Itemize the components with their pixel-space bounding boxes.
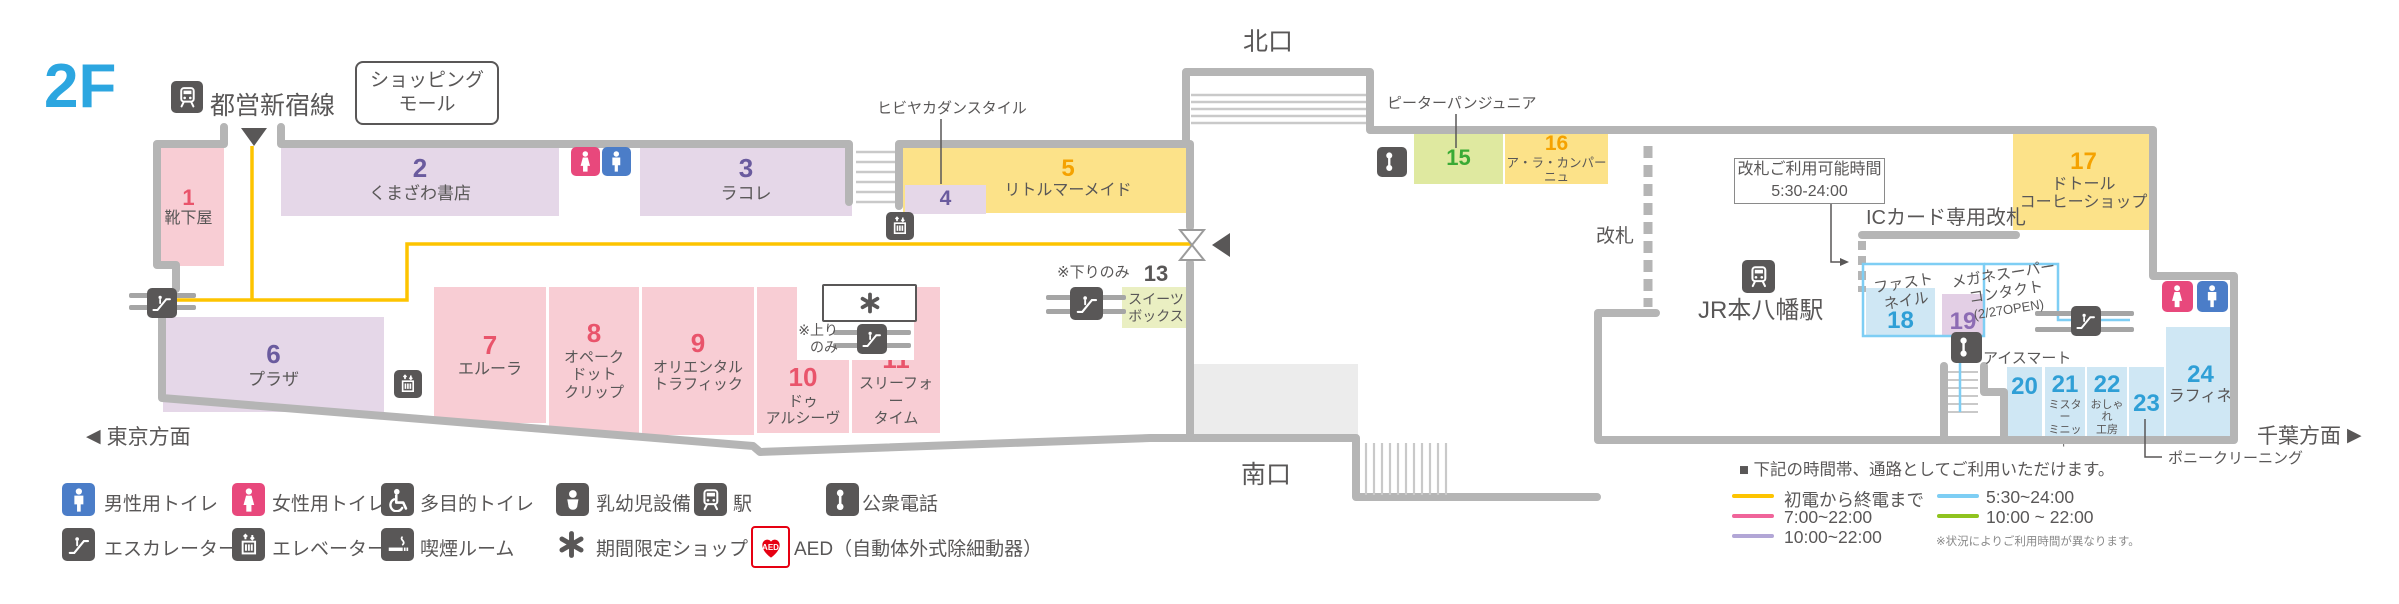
legend-label: エレベーター xyxy=(272,534,386,561)
direction-west: ◀ 東京方面 xyxy=(86,421,191,451)
shop-number: 21 xyxy=(2052,371,2079,399)
shop-area-1: 1 靴下屋 xyxy=(153,147,224,266)
shop-name: オペーク xyxy=(564,349,624,366)
callout-pony: ポニークリーニング xyxy=(2168,450,2303,468)
gate-hours-line1: 改札ご利用可能時間 xyxy=(1737,159,1881,181)
toei-train-icon xyxy=(171,81,203,113)
shop-name: ラコレ xyxy=(721,184,772,204)
legend-period-shop-icon xyxy=(556,529,587,560)
shop-area-23: 23 xyxy=(2129,367,2164,440)
shop-name: ア・ラ・カンパーニュ xyxy=(1505,156,1608,185)
shop-area-4: 4 xyxy=(905,185,986,214)
legend-label: 期間限定ショップ xyxy=(596,534,748,561)
legend-accessible-toilet-icon xyxy=(381,483,414,516)
shop-name: ドトール xyxy=(2051,176,2115,194)
shop-name: ボックス xyxy=(1128,308,1184,324)
mall-label-box: ショッピング モール xyxy=(355,61,499,125)
ic-gate-label: ICカード専用改札 xyxy=(1866,206,2026,230)
shop-number: 15 xyxy=(1446,145,1470,170)
legend-station-icon xyxy=(694,483,727,516)
shop-name: くまざわ書店 xyxy=(369,184,471,204)
period-limited-shop-box xyxy=(822,284,917,322)
shop-area-6: 6 プラザ xyxy=(163,317,384,412)
hours-swatch-yellow xyxy=(1732,494,1774,498)
shop-number: 23 xyxy=(2133,390,2160,418)
callout-ice: アイスマート xyxy=(1983,350,2071,368)
hours-swatch-pink xyxy=(1732,514,1774,518)
shop-area-2: 2 くまざわ書店 xyxy=(281,142,559,216)
shop-name: おしゃれ xyxy=(2087,399,2127,424)
shop-number: 20 xyxy=(2011,373,2038,401)
hours-legend-item: 5:30~24:00 xyxy=(1986,487,2074,508)
gate-hours-box: 改札ご利用可能時間 5:30-24:00 xyxy=(1734,158,1885,204)
shop-number: 16 xyxy=(1545,132,1568,156)
east-triangle-icon: ▶ xyxy=(2347,424,2362,447)
shop-number: 2 xyxy=(413,154,427,184)
toei-line-label: 都営新宿線 xyxy=(210,86,335,122)
shop-number: 6 xyxy=(266,340,280,370)
callout-peter: ピーターパンジュニア xyxy=(1387,95,1537,113)
legend-smoking-room-icon xyxy=(381,528,414,561)
stairs-upper-left xyxy=(856,152,895,202)
public-phone-icon xyxy=(1377,147,1407,177)
direction-east-label: 千葉方面 xyxy=(2257,420,2341,450)
floor-label: 2F xyxy=(44,56,116,118)
gate-hours-line2: 5:30-24:00 xyxy=(1771,181,1848,203)
legend-label: 多目的トイレ xyxy=(420,489,534,516)
period-limited-shop-icon xyxy=(858,291,882,315)
shop-name: 工房 xyxy=(2096,424,2118,437)
female-toilet-icon xyxy=(2162,281,2193,312)
shop-area-13: スイーツ ボックス xyxy=(1122,287,1190,328)
kaisatsu-label: 改札 xyxy=(1596,226,1634,249)
shop-area-24: 24 ラフィネ xyxy=(2166,327,2235,440)
gray-block xyxy=(1192,364,1358,436)
shop-name: 靴下屋 xyxy=(164,210,212,228)
callout-hibiya: ヒビヤカダンスタイル xyxy=(877,100,1027,118)
public-phone-icon xyxy=(1951,332,1982,363)
shop-number: 7 xyxy=(483,331,497,361)
legend-female-toilet-icon xyxy=(232,483,265,516)
male-toilet-icon xyxy=(2197,281,2228,312)
up-only-line1: ※上り xyxy=(796,322,838,339)
shop-name: スリーフォー xyxy=(852,375,940,410)
legend-escalator-icon xyxy=(62,528,95,561)
hours-swatch-green xyxy=(1937,514,1979,518)
escalator-icon xyxy=(147,288,177,318)
shop-name: アルシーヴ xyxy=(766,410,841,427)
hours-legend-item: 7:00~22:00 xyxy=(1784,507,1872,528)
elevator-icon xyxy=(886,212,914,240)
female-toilet-icon xyxy=(571,147,600,176)
aed-icon-text: AED xyxy=(762,543,779,552)
escalator-down-icon xyxy=(1070,287,1103,320)
shop-number: 24 xyxy=(2187,361,2214,389)
shop-number: 8 xyxy=(587,319,601,349)
shop-name: プラザ xyxy=(248,370,299,390)
shop-area-8: 8 オペーク ドット クリップ xyxy=(549,287,639,433)
shop-area-7: 7 エルーラ xyxy=(434,287,546,423)
legend-label: 女性用トイレ xyxy=(272,489,386,516)
legend-label: 男性用トイレ xyxy=(104,489,218,516)
shop-area-16: 16 ア・ラ・カンパーニュ xyxy=(1505,132,1608,184)
shop-area-20: 20 xyxy=(2007,367,2042,439)
shop-number: 9 xyxy=(691,329,705,359)
shop-name: ラフィネ xyxy=(2169,388,2233,406)
stairs-north xyxy=(1191,95,1366,123)
shop-name: タイム xyxy=(874,410,919,427)
shop-area-22: 22 おしゃれ 工房 xyxy=(2087,367,2127,440)
escalator-up-only-label: ※上り のみ xyxy=(796,322,838,356)
shop-number: 3 xyxy=(739,154,753,184)
shop-number: 10 xyxy=(789,363,818,393)
shop-number: 1 xyxy=(182,185,194,210)
mall-label-line1: ショッピング xyxy=(370,69,484,93)
shop-area-21: 21 ミスター ミニット xyxy=(2045,367,2085,440)
hours-swatch-blue xyxy=(1937,494,1979,498)
legend-male-toilet-icon xyxy=(62,483,95,516)
shop-area-15: 15 xyxy=(1414,132,1503,184)
shop-name: スイーツ xyxy=(1128,291,1184,307)
direction-west-label: 東京方面 xyxy=(107,421,191,451)
shop-name: オリエンタル xyxy=(653,359,743,376)
shop-area-17: 17 ドトール コーヒーショップ xyxy=(2013,131,2154,230)
legend-label: エスカレーター xyxy=(104,534,237,561)
hours-legend-item: 10:00 ~ 22:00 xyxy=(1986,507,2094,528)
jr-station-label: JR本八幡駅 xyxy=(1698,297,1823,326)
legend-label: 駅 xyxy=(733,489,752,516)
mall-label-line2: モール xyxy=(398,93,455,117)
legend-aed-icon: AED xyxy=(751,526,790,568)
shop-name: リトルマーメイド xyxy=(1004,182,1131,200)
shop-number: 22 xyxy=(2094,371,2121,399)
up-only-line2: のみ xyxy=(796,339,838,356)
gate-hourglass-icon xyxy=(1180,230,1204,260)
legend-label: AED（自動体外式除細動器） xyxy=(794,534,1042,561)
shop-number: 5 xyxy=(1061,155,1074,183)
corridor-cutout xyxy=(797,287,823,318)
gate-arrow-icon xyxy=(1212,233,1230,257)
west-triangle-icon: ◀ xyxy=(86,425,101,448)
elevator-icon xyxy=(394,370,422,398)
shop-number: 17 xyxy=(2070,148,2097,176)
shop-number: 4 xyxy=(940,187,952,211)
hours-swatch-purple xyxy=(1732,534,1774,538)
escalator-icon xyxy=(2071,306,2101,336)
legend-label: 喫煙ルーム xyxy=(420,534,514,561)
hours-legend-title: ■ 下記の時間帯、通路としてご利用いただけます。 xyxy=(1739,456,2114,480)
floor-map-2f: 1 靴下屋 2 くまざわ書店 3 ラコレ 5 リトルマーメイド 4 6 プラザ … xyxy=(0,0,2399,604)
shop-area-9: 9 オリエンタル トラフィック xyxy=(642,287,754,435)
toei-entrance-triangle xyxy=(241,128,267,146)
shop-name: ドゥ xyxy=(788,393,818,410)
shop-name: コーヒーショップ xyxy=(2020,194,2148,212)
shop-name: クリップ xyxy=(564,384,624,401)
legend-public-phone-icon xyxy=(826,483,859,516)
shop-number-13: 13 xyxy=(1140,261,1172,287)
jr-train-icon xyxy=(1742,260,1775,293)
stairs-south xyxy=(1366,443,1446,495)
escalator-down-only-label: ※下りのみ xyxy=(1057,264,1130,282)
shop-name: エルーラ xyxy=(458,361,522,379)
direction-east: 千葉方面 ▶ xyxy=(2257,420,2362,450)
legend-label: 公衆電話 xyxy=(862,489,938,516)
shop-name: ドット xyxy=(571,366,616,383)
north-exit-label: 北口 xyxy=(1243,22,1293,58)
shop-area-3: 3 ラコレ xyxy=(640,142,852,216)
legend-label: 乳幼児設備 xyxy=(596,489,691,516)
info-arrowhead xyxy=(1840,258,1849,266)
shop-name: ミニット xyxy=(2045,424,2085,449)
hours-legend-note: ※状況によりご利用時間が異なります。 xyxy=(1936,533,2140,549)
stairs-near-19 xyxy=(1948,372,1978,412)
south-exit-label: 南口 xyxy=(1241,455,1291,491)
shop-name: ミスター xyxy=(2045,399,2085,424)
escalator-up-icon xyxy=(857,324,887,354)
hours-legend-item: 10:00~22:00 xyxy=(1784,527,1882,548)
shop-name: トラフィック xyxy=(653,376,743,393)
legend-baby-facility-icon xyxy=(556,483,589,516)
male-toilet-icon xyxy=(602,147,631,176)
legend-elevator-icon xyxy=(232,528,265,561)
